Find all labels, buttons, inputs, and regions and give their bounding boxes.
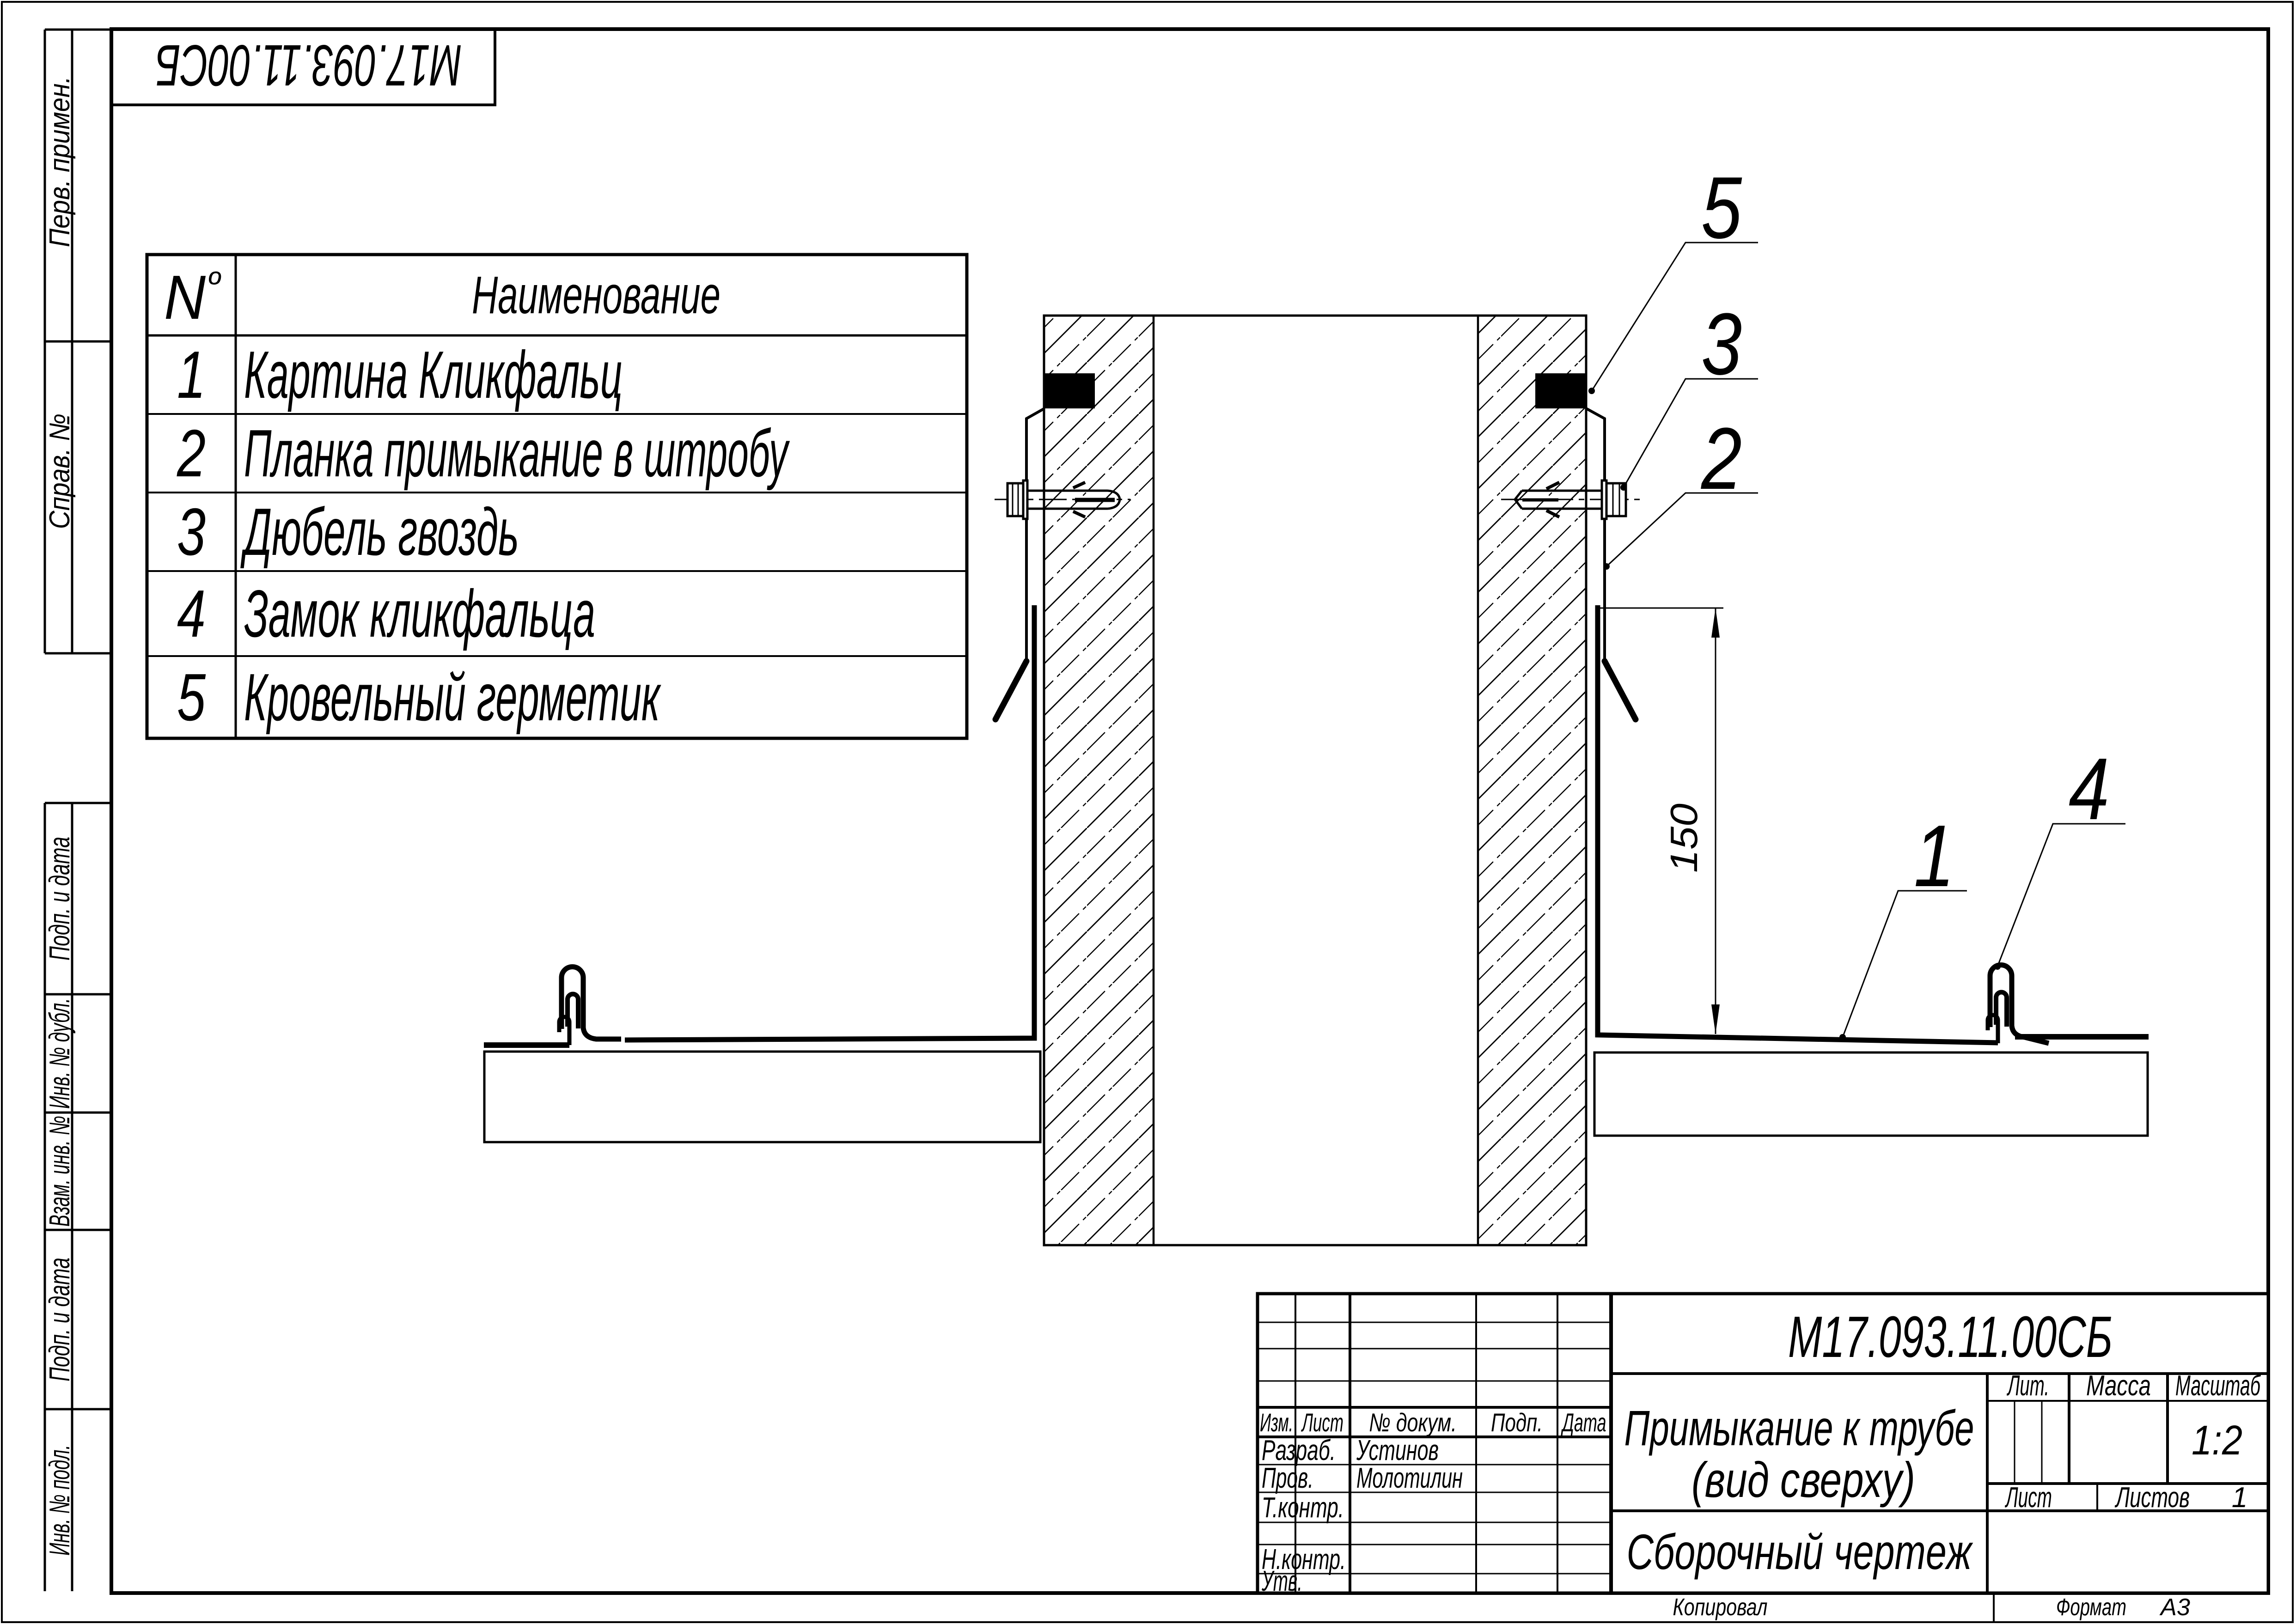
svg-text:3: 3: [177, 494, 206, 569]
svg-text:2: 2: [1700, 410, 1742, 508]
svg-text:1: 1: [1914, 807, 1954, 905]
svg-text:Инв. № дубл.: Инв. № дубл.: [44, 998, 76, 1109]
svg-text:Сборочный чертеж: Сборочный чертеж: [1627, 1524, 1974, 1580]
svg-text:Взам. инв. №: Взам. инв. №: [44, 1116, 76, 1227]
svg-text:Справ. №: Справ. №: [44, 414, 76, 529]
svg-text:М17.093.11.00СБ: М17.093.11.00СБ: [1788, 1304, 2113, 1369]
svg-text:(вид сверху): (вид сверху): [1691, 1452, 1915, 1508]
svg-text:1: 1: [2232, 1482, 2247, 1514]
svg-text:Молотилин: Молотилин: [1356, 1462, 1463, 1494]
svg-text:Кровельный герметик: Кровельный герметик: [244, 660, 661, 735]
svg-text:Картина Кликфальц: Картина Кликфальц: [244, 337, 623, 412]
svg-text:Дюбель гвоздь: Дюбель гвоздь: [240, 494, 519, 569]
svg-text:4: 4: [2069, 740, 2109, 838]
svg-text:Примыкание к трубе: Примыкание к трубе: [1624, 1400, 1974, 1456]
svg-text:Пров.: Пров.: [1262, 1462, 1313, 1494]
svg-text:1: 1: [177, 337, 206, 412]
svg-text:Лит.: Лит.: [2007, 1370, 2049, 1402]
svg-text:Планка примыкание в штробу: Планка примыкание в штробу: [244, 416, 790, 491]
svg-text:Масштаб: Масштаб: [2175, 1370, 2261, 1402]
svg-text:5: 5: [1701, 159, 1742, 257]
svg-text:Листов: Листов: [2114, 1482, 2190, 1514]
svg-text:N: N: [164, 262, 206, 332]
svg-text:Перв. примен.: Перв. примен.: [44, 76, 76, 247]
svg-text:Масса: Масса: [2086, 1370, 2151, 1402]
svg-text:Копировал: Копировал: [1673, 1594, 1768, 1621]
svg-text:Т.контр.: Т.контр.: [1262, 1492, 1344, 1524]
svg-text:Изм.: Изм.: [1260, 1408, 1293, 1437]
svg-text:М17.093.11.00СБ: М17.093.11.00СБ: [156, 33, 462, 98]
svg-text:4: 4: [177, 576, 206, 651]
svg-text:Устинов: Устинов: [1356, 1435, 1439, 1466]
svg-text:Разраб.: Разраб.: [1262, 1435, 1336, 1466]
svg-text:Утв.: Утв.: [1261, 1565, 1302, 1597]
svg-text:2: 2: [177, 416, 206, 491]
svg-text:Лист: Лист: [2004, 1482, 2052, 1514]
svg-text:Замок кликфальца: Замок кликфальца: [244, 576, 595, 651]
svg-text:Инв. № подл.: Инв. № подл.: [44, 1445, 76, 1556]
svg-text:5: 5: [177, 660, 206, 735]
svg-text:Дата: Дата: [1561, 1408, 1606, 1437]
svg-text:Подп.: Подп.: [1491, 1408, 1543, 1437]
svg-text:1:2: 1:2: [2192, 1417, 2242, 1464]
svg-text:Подп. и дата: Подп. и дата: [44, 837, 76, 961]
svg-text:150: 150: [1662, 803, 1705, 873]
svg-text:3: 3: [1701, 295, 1742, 393]
svg-text:Формат: Формат: [2056, 1594, 2126, 1621]
svg-text:А3: А3: [2159, 1594, 2190, 1621]
svg-text:№ докум.: № докум.: [1369, 1408, 1457, 1437]
svg-text:º: º: [207, 264, 221, 303]
svg-text:Лист: Лист: [1301, 1408, 1343, 1437]
svg-text:Наименование: Наименование: [472, 266, 721, 325]
svg-text:Подп. и дата: Подп. и дата: [44, 1258, 76, 1381]
